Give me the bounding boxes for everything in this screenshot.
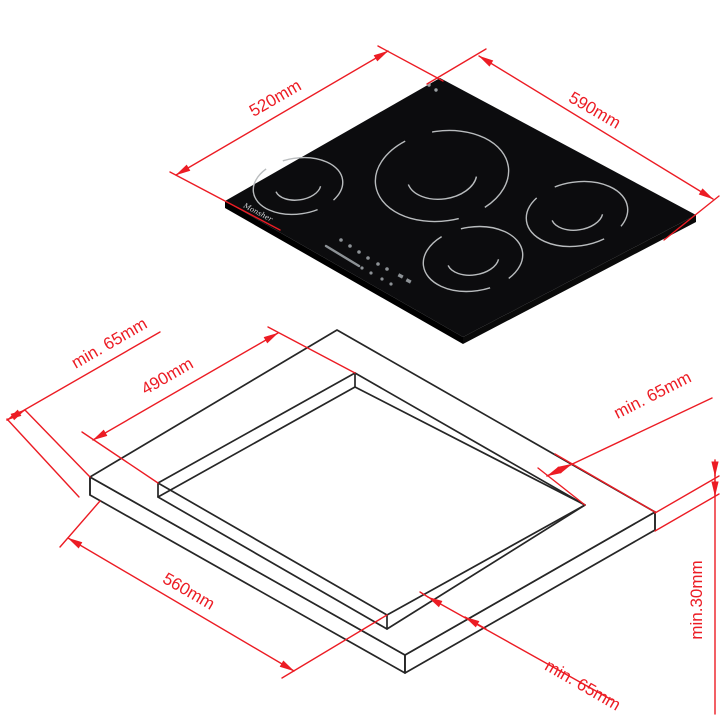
touch-key xyxy=(339,238,343,242)
touch-key xyxy=(376,262,380,266)
cutout-width-ext1 xyxy=(60,501,100,547)
touch-key xyxy=(366,256,370,260)
clearance-front-label: min. 65mm xyxy=(542,656,624,714)
touch-key xyxy=(380,277,383,280)
installation-diagram-page: min. 65mm 490mm min. 65mm 560mm min. 65m… xyxy=(0,0,720,720)
cutout-depth-label: 490mm xyxy=(138,354,197,399)
thickness-label: min.30mm xyxy=(687,560,706,639)
clearance-back-dim-arrow2 xyxy=(7,410,25,420)
cooktop-glass-surface xyxy=(225,78,696,337)
clearance-back-ext2 xyxy=(7,419,79,497)
cooktop-depth-ext1 xyxy=(427,49,486,84)
clearance-back-ext1 xyxy=(25,410,90,477)
cooktop-width-label: 520mm xyxy=(246,76,305,121)
clearance-back-label: min. 65mm xyxy=(68,314,150,372)
clearance-back-dim-line xyxy=(7,332,160,420)
touch-key xyxy=(357,250,361,254)
cutout-width-label: 560mm xyxy=(159,569,218,614)
thickness-ext2 xyxy=(655,494,719,531)
touch-key xyxy=(360,266,363,269)
clearance-right-label: min. 65mm xyxy=(611,368,695,423)
touch-key xyxy=(389,282,392,285)
cooktop-drawing: Monsher xyxy=(225,78,696,344)
touch-key xyxy=(385,267,389,271)
corner-mark xyxy=(434,88,437,91)
touch-key xyxy=(369,271,372,274)
installation-diagram: min. 65mm 490mm min. 65mm 560mm min. 65m… xyxy=(0,0,720,720)
touch-key xyxy=(348,244,352,248)
thickness-ext1 xyxy=(655,476,719,513)
